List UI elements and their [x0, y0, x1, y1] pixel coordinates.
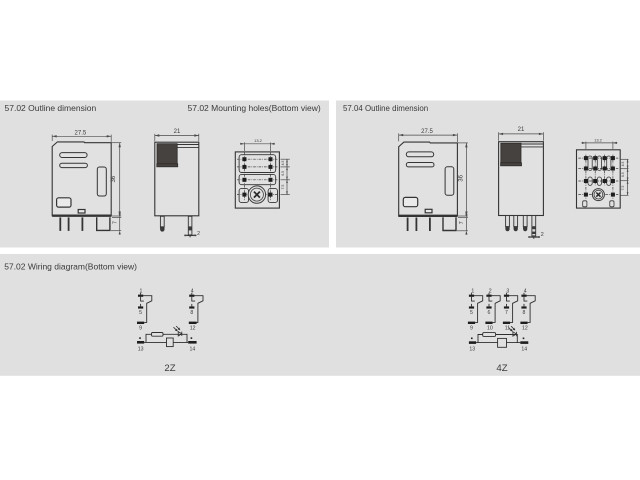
svg-text:12: 12 — [522, 326, 528, 332]
svg-text:7.5: 7.5 — [281, 185, 285, 190]
svg-text:6: 6 — [488, 310, 491, 316]
svg-text:27.5: 27.5 — [75, 130, 87, 136]
svg-text:6.5: 6.5 — [281, 171, 285, 176]
svg-text:14: 14 — [521, 347, 527, 353]
svg-text:6.5: 6.5 — [621, 172, 625, 177]
svg-text:57.02 Wiring diagram(Bottom vi: 57.02 Wiring diagram(Bottom view) — [4, 262, 137, 272]
svg-text:8: 8 — [523, 310, 526, 316]
svg-text:27.5: 27.5 — [421, 129, 433, 135]
svg-text:7: 7 — [459, 221, 465, 224]
svg-text:8: 8 — [190, 310, 193, 316]
svg-text:2Z: 2Z — [164, 363, 175, 374]
svg-text:57.02 Mounting holes(Bottom vi: 57.02 Mounting holes(Bottom view) — [188, 103, 321, 113]
svg-text:13.2: 13.2 — [254, 138, 263, 143]
svg-text:14: 14 — [190, 347, 196, 353]
svg-text:12: 12 — [190, 326, 196, 332]
svg-text:36: 36 — [458, 174, 464, 181]
svg-text:13: 13 — [469, 347, 475, 353]
svg-text:4.5: 4.5 — [621, 162, 625, 167]
svg-text:9: 9 — [470, 326, 473, 332]
svg-text:4Z: 4Z — [496, 363, 507, 374]
svg-text:7: 7 — [505, 310, 508, 316]
svg-text:4.5: 4.5 — [281, 161, 285, 166]
svg-text:5: 5 — [139, 310, 142, 316]
svg-text:21: 21 — [518, 127, 525, 133]
svg-text:7.5: 7.5 — [621, 186, 625, 191]
svg-text:2: 2 — [541, 232, 544, 238]
svg-text:10: 10 — [487, 326, 493, 332]
svg-text:7: 7 — [113, 221, 119, 224]
svg-text:13.2: 13.2 — [594, 138, 603, 143]
svg-text:57.02 Outline dimension: 57.02 Outline dimension — [5, 103, 97, 113]
svg-text:2: 2 — [197, 231, 200, 237]
svg-text:13: 13 — [138, 347, 144, 353]
svg-text:9: 9 — [139, 326, 142, 332]
svg-text:57.04 Outline dimension: 57.04 Outline dimension — [343, 104, 428, 113]
svg-text:21: 21 — [174, 129, 181, 135]
svg-text:4: 4 — [191, 288, 194, 294]
svg-text:36: 36 — [111, 175, 117, 182]
svg-text:5: 5 — [470, 310, 473, 316]
svg-text:1: 1 — [140, 288, 143, 294]
